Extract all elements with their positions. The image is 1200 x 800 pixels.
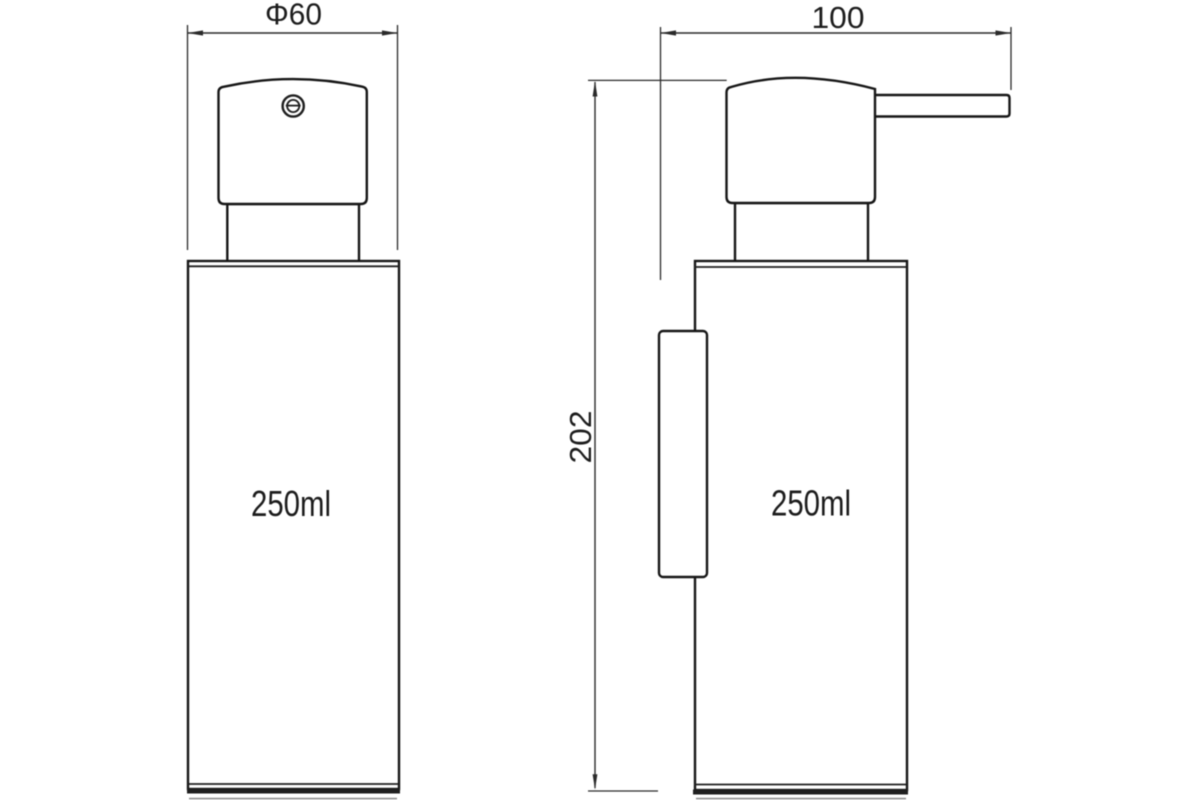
svg-text:250ml: 250ml (251, 483, 331, 524)
svg-text:250ml: 250ml (771, 483, 851, 524)
svg-text:Φ60: Φ60 (265, 0, 322, 32)
svg-text:202: 202 (563, 411, 598, 464)
svg-text:100: 100 (812, 0, 865, 35)
